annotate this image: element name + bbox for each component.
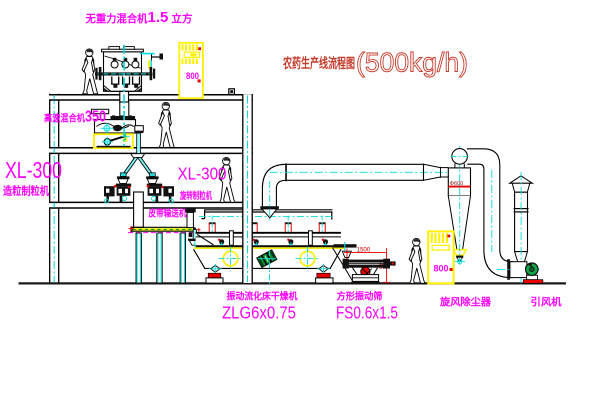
svg-text:方形振动筛: 方形振动筛 (337, 291, 383, 303)
svg-text:FS0.6x1.5: FS0.6x1.5 (336, 303, 398, 323)
svg-text:XL-300: XL-300 (5, 157, 62, 183)
svg-text:XL-300: XL-300 (178, 164, 227, 184)
svg-text:农药生产线流程图: 农药生产线流程图 (282, 55, 355, 71)
svg-text:ZLG6x0.75: ZLG6x0.75 (222, 303, 296, 323)
svg-text:旋风除尘器: 旋风除尘器 (439, 296, 492, 309)
svg-text:皮带输送机: 皮带输送机 (148, 208, 187, 220)
svg-text:振动流化床干燥机: 振动流化床干燥机 (227, 291, 298, 303)
svg-text:800: 800 (434, 264, 449, 274)
svg-text:Φ600: Φ600 (450, 181, 464, 187)
svg-text:1500: 1500 (357, 246, 371, 253)
svg-text:(500kg/h): (500kg/h) (356, 48, 468, 78)
svg-text:旋转制粒机: 旋转制粒机 (179, 190, 212, 202)
svg-text:引风机: 引风机 (531, 296, 562, 309)
svg-text:造粒制粒机: 造粒制粒机 (3, 184, 49, 198)
svg-text:800: 800 (186, 71, 199, 81)
